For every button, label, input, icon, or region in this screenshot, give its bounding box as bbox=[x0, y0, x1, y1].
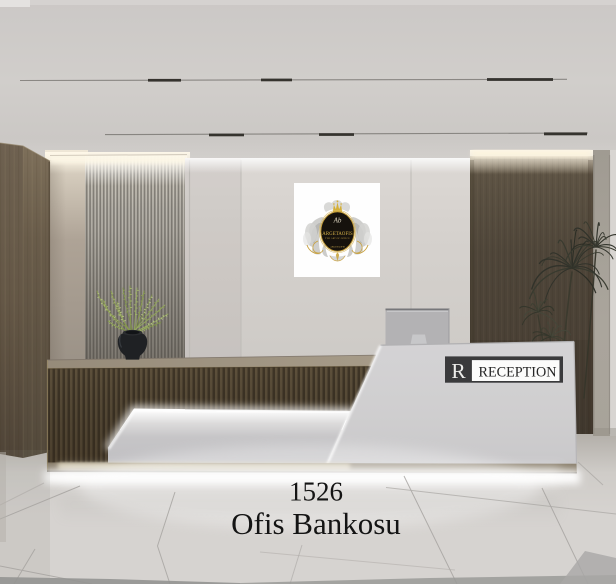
svg-text:1526: 1526 bbox=[289, 477, 343, 507]
svg-text:RECEPTION: RECEPTION bbox=[479, 364, 557, 381]
svg-text:THE ART OF OFFICE: THE ART OF OFFICE bbox=[325, 237, 350, 240]
svg-text:Ab: Ab bbox=[333, 217, 342, 225]
svg-text:Ofis Bankosu: Ofis Bankosu bbox=[231, 506, 401, 541]
svg-text:ARGETAOFIS: ARGETAOFIS bbox=[330, 246, 345, 249]
svg-text:R: R bbox=[451, 359, 466, 383]
svg-text:ARGETAOFIS: ARGETAOFIS bbox=[322, 232, 353, 237]
